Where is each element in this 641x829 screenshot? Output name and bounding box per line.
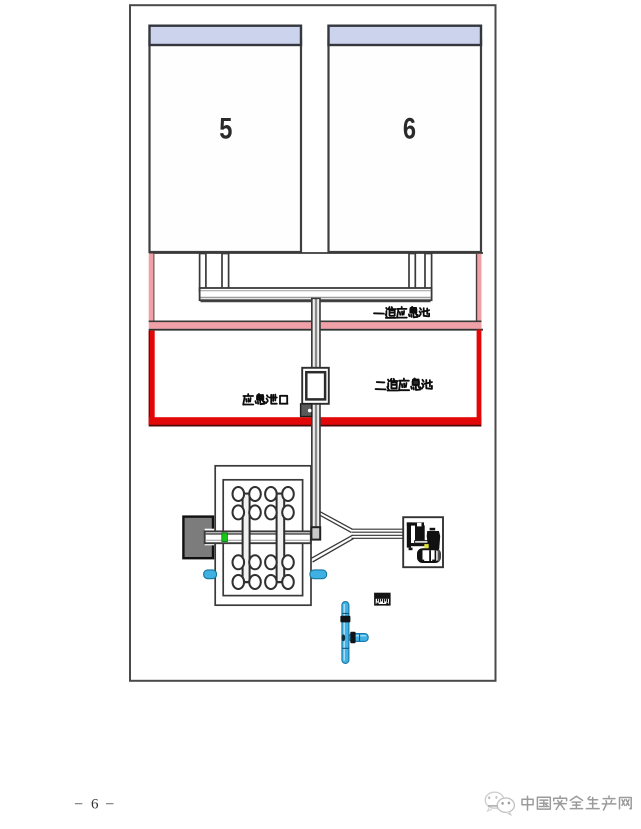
svg-text:–: – [105, 796, 114, 812]
svg-text:6: 6 [403, 112, 416, 145]
svg-text:–: – [74, 796, 83, 812]
svg-text:6: 6 [91, 796, 99, 812]
svg-text:5: 5 [219, 112, 232, 145]
